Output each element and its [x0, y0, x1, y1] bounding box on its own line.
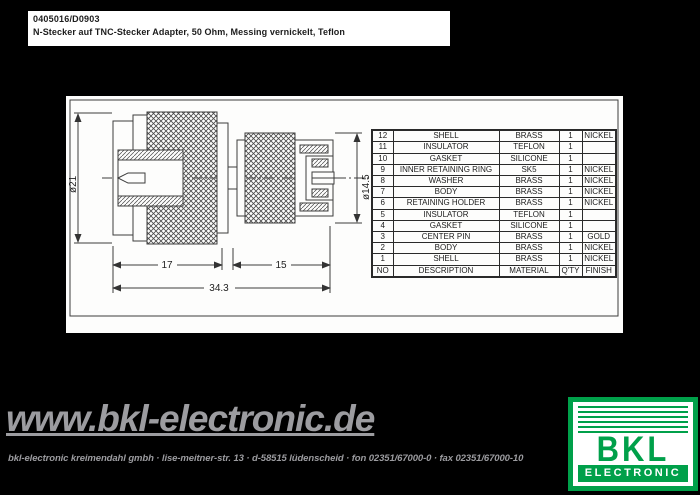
cell-qty: 1	[559, 231, 582, 242]
parts-table: 12SHELLBRASS1NICKEL 11INSULATORTEFLON1 1…	[371, 129, 615, 278]
cell-description: INNER RETAINING RING	[393, 164, 499, 175]
cell-no: 6	[372, 198, 393, 209]
cell-description: BODY	[393, 187, 499, 198]
cell-finish	[582, 153, 616, 164]
cell-description: RETAINING HOLDER	[393, 198, 499, 209]
cell-qty: 1	[559, 243, 582, 254]
cell-finish: NICKEL	[582, 198, 616, 209]
header-finish: FINISH	[582, 265, 616, 277]
drawing-panel: ø21 ø14.5 17 15 34.3 12SHELLBRASS1NICKEL…	[66, 96, 623, 333]
cell-no: 9	[372, 164, 393, 175]
cell-qty: 1	[559, 175, 582, 186]
cell-finish: NICKEL	[582, 243, 616, 254]
cell-qty: 1	[559, 153, 582, 164]
cell-description: WASHER	[393, 175, 499, 186]
cell-finish: GOLD	[582, 231, 616, 242]
cell-no: 12	[372, 130, 393, 142]
table-row: 4GASKETSILICONE1	[372, 220, 616, 231]
cell-material: SILICONE	[499, 153, 559, 164]
cell-qty: 1	[559, 198, 582, 209]
header-no: NO	[372, 265, 393, 277]
cell-description: GASKET	[393, 220, 499, 231]
cell-qty: 1	[559, 130, 582, 142]
cell-finish	[582, 209, 616, 220]
cell-material: TEFLON	[499, 209, 559, 220]
page-background: 0405016/D0903 N-Stecker auf TNC-Stecker …	[0, 0, 700, 495]
table-row: 8WASHERBRASS1NICKEL	[372, 175, 616, 186]
table-row: 2BODYBRASS1NICKEL	[372, 243, 616, 254]
cell-no: 5	[372, 209, 393, 220]
table-row: 6RETAINING HOLDERBRASS1NICKEL	[372, 198, 616, 209]
right-connector-body	[237, 133, 336, 223]
cell-finish: NICKEL	[582, 175, 616, 186]
cell-material: BRASS	[499, 198, 559, 209]
company-address-text: bkl-electronic kreimendahl gmbh · lise-m…	[8, 453, 458, 464]
cell-no: 10	[372, 153, 393, 164]
logo-brand-text: BKL	[578, 431, 688, 467]
table-row: 10GASKETSILICONE1	[372, 153, 616, 164]
cell-material: SILICONE	[499, 220, 559, 231]
cell-no: 8	[372, 175, 393, 186]
cell-qty: 1	[559, 187, 582, 198]
cell-qty: 1	[559, 164, 582, 175]
cell-no: 2	[372, 243, 393, 254]
table-row: 7BODYBRASS1NICKEL	[372, 187, 616, 198]
cell-material: BRASS	[499, 243, 559, 254]
header-box: 0405016/D0903 N-Stecker auf TNC-Stecker …	[28, 11, 450, 46]
cell-material: BRASS	[499, 254, 559, 265]
cell-description: BODY	[393, 243, 499, 254]
cell-description: INSULATOR	[393, 142, 499, 153]
table-row: 12SHELLBRASS1NICKEL	[372, 130, 616, 142]
table-row: 1SHELLBRASS1NICKEL	[372, 254, 616, 265]
header-qty: Q'TY	[559, 265, 582, 277]
cell-material: SK5	[499, 164, 559, 175]
cell-material: TEFLON	[499, 142, 559, 153]
cell-material: BRASS	[499, 187, 559, 198]
cell-no: 3	[372, 231, 393, 242]
table-header-row: NODESCRIPTIONMATERIALQ'TYFINISH	[372, 265, 616, 277]
website-url-text: www.bkl-electronic.de	[6, 398, 456, 440]
cell-finish: NICKEL	[582, 187, 616, 198]
table-row: 5INSULATORTEFLON1	[372, 209, 616, 220]
cell-finish	[582, 220, 616, 231]
cell-qty: 1	[559, 220, 582, 231]
cell-qty: 1	[559, 142, 582, 153]
product-description: N-Stecker auf TNC-Stecker Adapter, 50 Oh…	[33, 27, 450, 37]
cell-material: BRASS	[499, 130, 559, 142]
cell-description: GASKET	[393, 153, 499, 164]
cell-finish: NICKEL	[582, 130, 616, 142]
logo-subtitle-text: ELECTRONIC	[578, 465, 688, 482]
table-row: 11INSULATORTEFLON1	[372, 142, 616, 153]
header-description: DESCRIPTION	[393, 265, 499, 277]
table-row: 9INNER RETAINING RINGSK51NICKEL	[372, 164, 616, 175]
cell-qty: 1	[559, 209, 582, 220]
cell-description: SHELL	[393, 130, 499, 142]
cell-description: CENTER PIN	[393, 231, 499, 242]
dimension-label-length-left: 17	[161, 260, 173, 271]
table-row: 3CENTER PINBRASS1GOLD	[372, 231, 616, 242]
dimension-label-length-total: 34.3	[209, 283, 229, 294]
cell-qty: 1	[559, 254, 582, 265]
cell-no: 7	[372, 187, 393, 198]
cell-description: SHELL	[393, 254, 499, 265]
bkl-logo: BKL ELECTRONIC	[568, 397, 698, 491]
header-material: MATERIAL	[499, 265, 559, 277]
cell-no: 11	[372, 142, 393, 153]
cell-description: INSULATOR	[393, 209, 499, 220]
dimension-label-diameter-left: ø21	[68, 175, 79, 193]
dimension-label-length-right: 15	[275, 260, 287, 271]
left-connector-body	[113, 112, 238, 244]
cell-no: 1	[372, 254, 393, 265]
part-number: 0405016/D0903	[33, 14, 450, 24]
cell-finish	[582, 142, 616, 153]
cell-material: BRASS	[499, 231, 559, 242]
cell-finish: NICKEL	[582, 164, 616, 175]
cell-no: 4	[372, 220, 393, 231]
cell-finish: NICKEL	[582, 254, 616, 265]
cell-material: BRASS	[499, 175, 559, 186]
